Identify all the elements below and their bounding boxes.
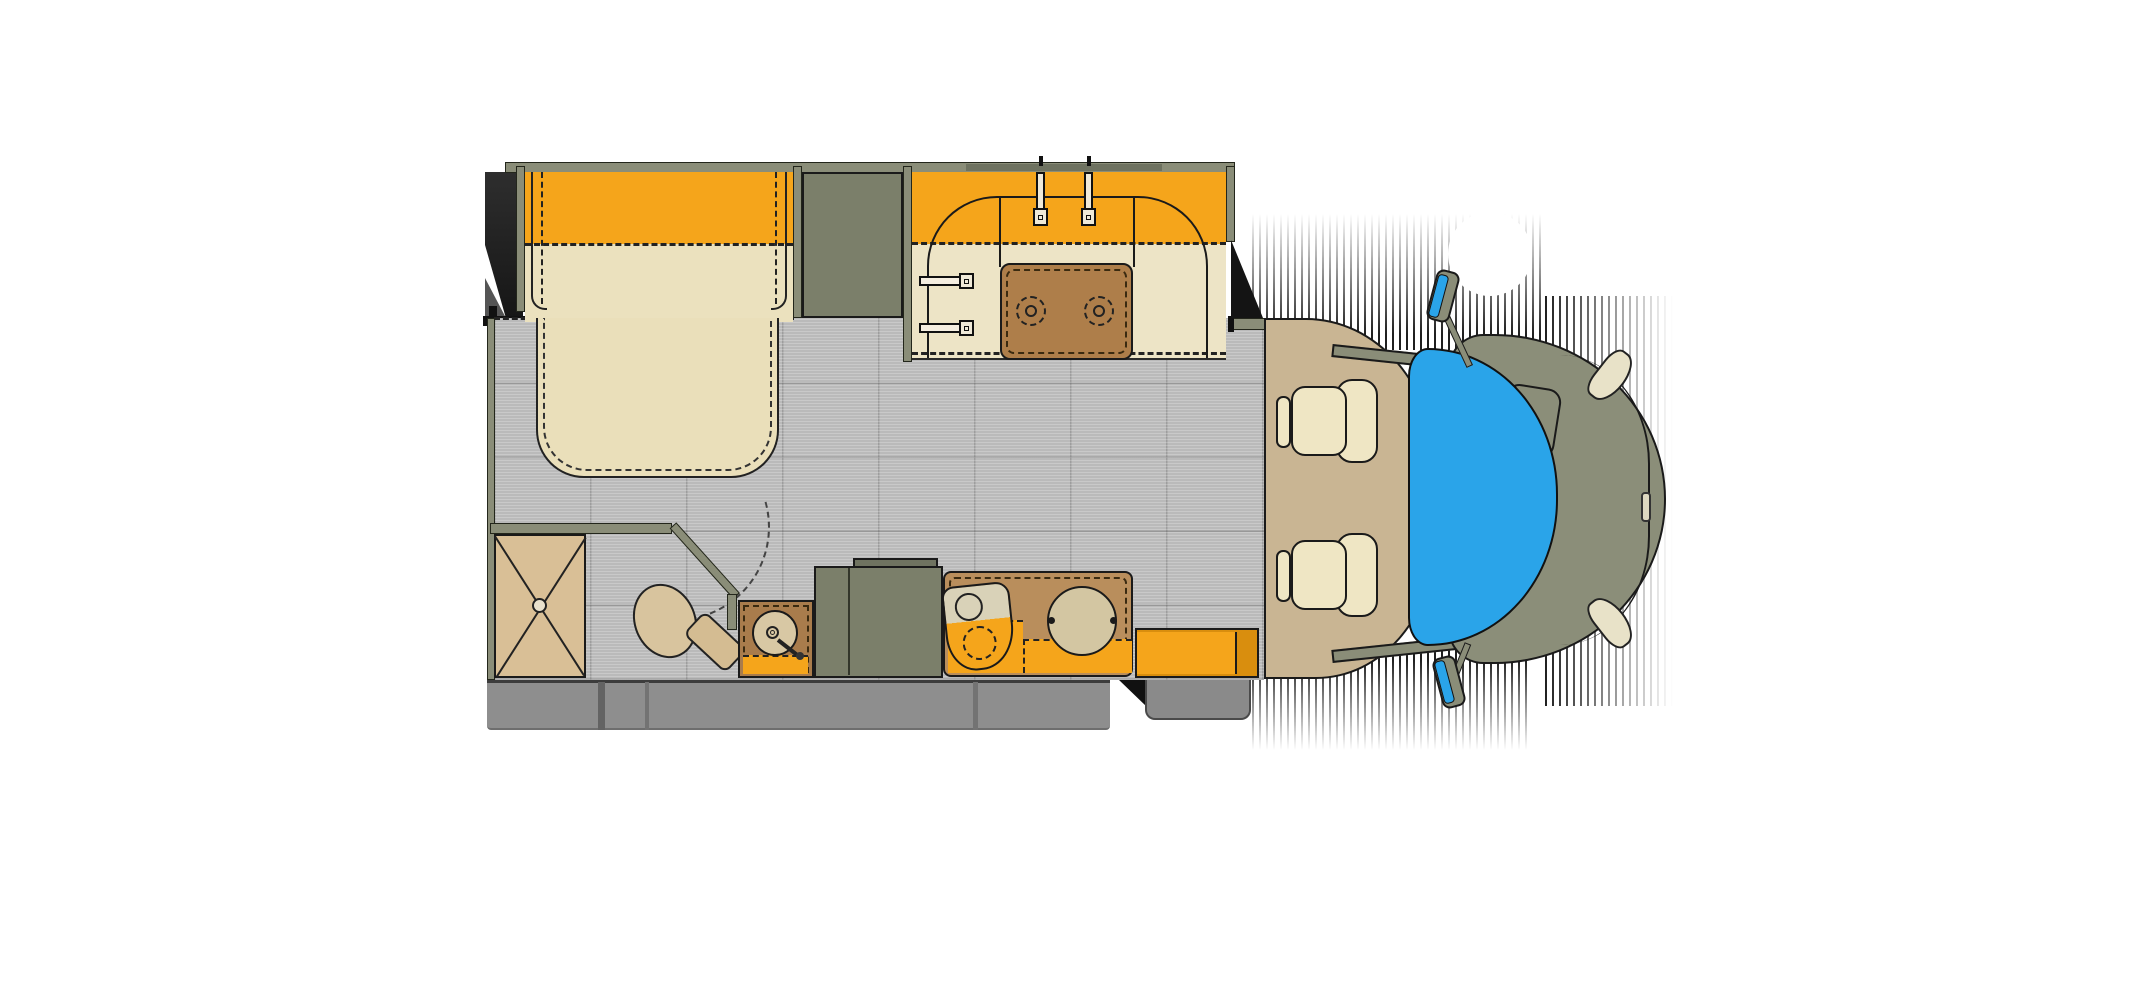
seat-cushion bbox=[1291, 540, 1347, 610]
skirt-seam bbox=[598, 682, 605, 730]
drawer-handle-icon bbox=[919, 323, 963, 333]
wall-handle-icon bbox=[1087, 156, 1091, 166]
bed-head-area bbox=[525, 244, 793, 322]
seat-cushion bbox=[1291, 386, 1347, 456]
faucet-base-icon bbox=[1033, 208, 1048, 226]
floorplan-canvas bbox=[0, 0, 2141, 1000]
kitchen-right-wall bbox=[1226, 166, 1235, 242]
shower-drain-icon bbox=[532, 598, 547, 613]
entry-bracket-cap bbox=[1228, 316, 1234, 332]
entry-wall-bracket bbox=[1230, 318, 1266, 330]
bed-rail-left-dashed bbox=[541, 172, 551, 304]
bathroom-door-jamb bbox=[727, 594, 737, 630]
wardrobe-cabinet bbox=[802, 172, 903, 318]
bed-cabinet-dashed bbox=[525, 243, 793, 246]
bed-mattress-dashed bbox=[543, 318, 772, 471]
vanity-drain-icon bbox=[770, 630, 775, 635]
bathroom-vanity bbox=[738, 600, 814, 678]
seat-armrest bbox=[1276, 550, 1291, 602]
exterior-step-shadow bbox=[1119, 680, 1147, 707]
cabinet-divider bbox=[848, 568, 850, 675]
bedroom-left-wall bbox=[516, 166, 525, 312]
fridge-cabinet bbox=[814, 566, 943, 678]
bedroom-right-wall bbox=[793, 166, 802, 318]
faucet-base-icon bbox=[1081, 208, 1096, 226]
cab-seat-passenger bbox=[1274, 531, 1380, 619]
wall-handle-icon bbox=[1039, 156, 1043, 166]
kitchen-section-divider bbox=[1133, 197, 1135, 267]
kitchen-section-divider bbox=[999, 197, 1001, 267]
burner-icon bbox=[1093, 305, 1105, 317]
faucet-stem-icon bbox=[1036, 172, 1045, 212]
slide-rail-knob bbox=[489, 306, 497, 316]
kitchen-left-wall bbox=[903, 166, 912, 362]
mirror-clearance-highlight bbox=[1448, 212, 1532, 296]
drawer-handle-icon bbox=[919, 276, 963, 286]
cooktop bbox=[1000, 263, 1133, 360]
kitchen-window bbox=[966, 164, 1162, 171]
bathroom-wall bbox=[490, 523, 672, 534]
sink-bowl-icon bbox=[953, 592, 984, 623]
exterior-step bbox=[1145, 680, 1251, 720]
seat-armrest bbox=[1276, 396, 1291, 448]
cab-seat-driver bbox=[1274, 377, 1380, 465]
drawer-handle-cap bbox=[959, 320, 974, 336]
vanity-faucet-knob bbox=[796, 652, 804, 660]
skirt-seam bbox=[973, 682, 978, 730]
bed-overhead-cabinet bbox=[525, 172, 793, 246]
table-mount-dot bbox=[1048, 617, 1055, 624]
bed-mattress bbox=[536, 318, 779, 478]
sink-bowl-dashed-icon bbox=[961, 624, 998, 661]
drawer-handle-cap bbox=[959, 273, 974, 289]
skirt-seam bbox=[645, 682, 649, 730]
body-skirt bbox=[487, 680, 1110, 730]
burner-icon bbox=[1025, 305, 1037, 317]
grille-trim bbox=[1641, 492, 1651, 522]
entry-step-face bbox=[1137, 632, 1237, 674]
pedestal-table bbox=[1047, 586, 1117, 656]
faucet-stem-icon bbox=[1084, 172, 1093, 212]
bed-rail-right-dashed bbox=[767, 172, 777, 304]
table-mount-dot bbox=[1110, 617, 1117, 624]
